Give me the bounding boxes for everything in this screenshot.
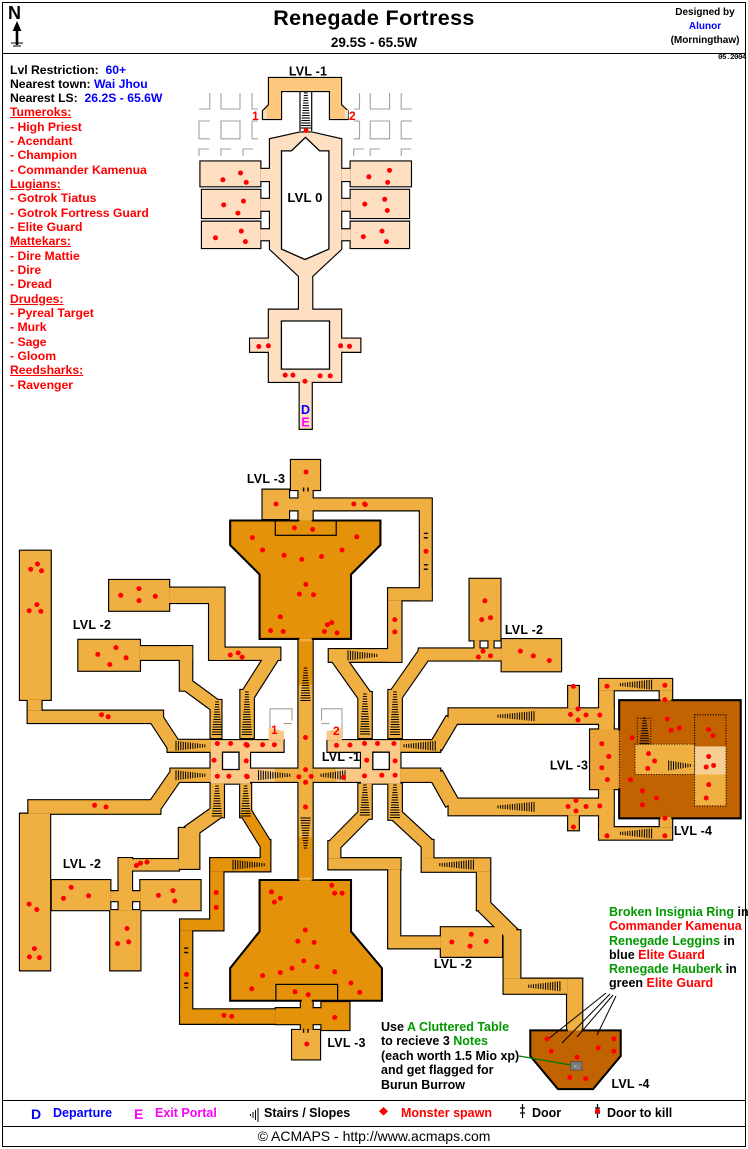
- svg-text:LVL -2: LVL -2: [434, 957, 472, 971]
- svg-text:LVL -2: LVL -2: [505, 623, 543, 637]
- svg-text:1: 1: [271, 723, 278, 737]
- svg-text:1: 1: [252, 109, 259, 123]
- svg-text:LVL -4: LVL -4: [674, 824, 712, 838]
- svg-text:LVL -2: LVL -2: [63, 857, 101, 871]
- svg-text:E: E: [301, 416, 309, 430]
- svg-text:LVL -1: LVL -1: [289, 65, 327, 79]
- svg-text:LVL -3: LVL -3: [550, 759, 588, 773]
- svg-text:2: 2: [333, 724, 340, 738]
- svg-text:LVL -4: LVL -4: [611, 1077, 649, 1091]
- svg-text:LVL -2: LVL -2: [73, 618, 111, 632]
- svg-text:2: 2: [349, 109, 356, 123]
- svg-text:LVL -1: LVL -1: [322, 750, 360, 764]
- svg-text:+:-: +:-: [574, 1065, 580, 1071]
- svg-text:LVL -3: LVL -3: [327, 1036, 365, 1050]
- svg-text:LVL 0: LVL 0: [287, 190, 322, 205]
- svg-text:LVL -3: LVL -3: [247, 472, 285, 486]
